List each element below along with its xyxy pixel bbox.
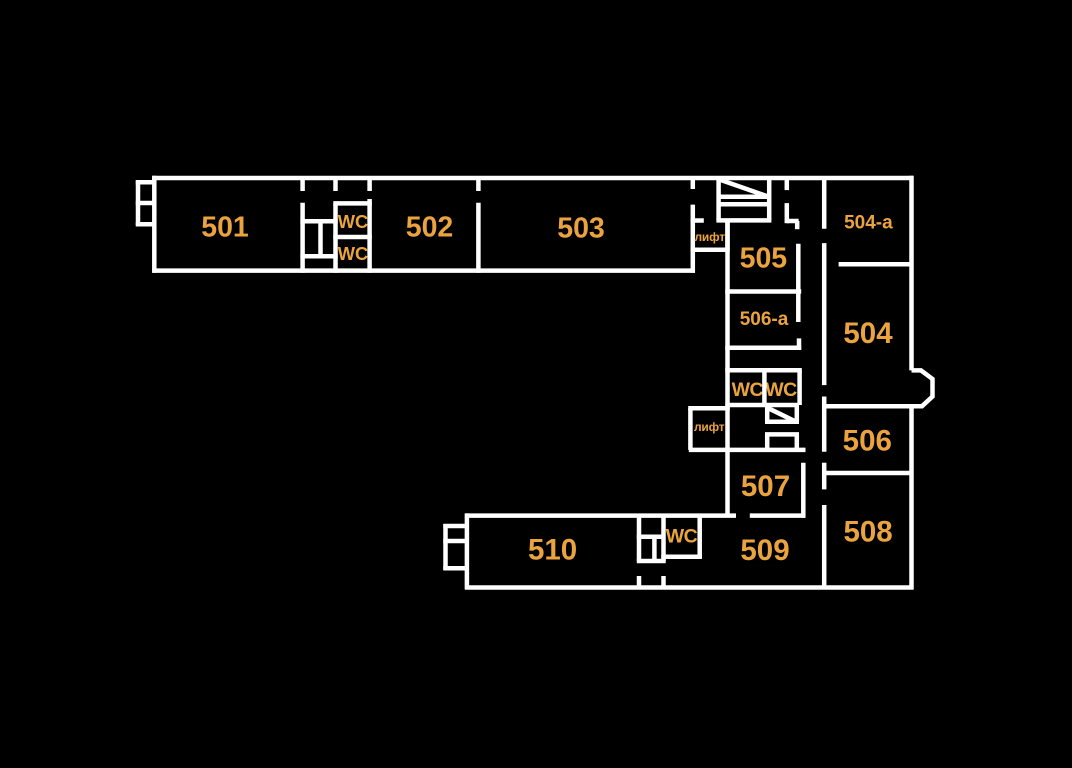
svg-text:504: 504 [843, 317, 893, 350]
svg-text:507: 507 [741, 470, 790, 503]
svg-text:506-a: 506-a [740, 309, 789, 330]
svg-text:503: 503 [557, 212, 605, 244]
svg-text:506: 506 [843, 425, 892, 458]
svg-text:509: 509 [740, 534, 789, 567]
svg-text:лифт: лифт [694, 230, 725, 244]
svg-text:WC: WC [338, 211, 368, 232]
svg-text:WC: WC [732, 379, 764, 401]
svg-text:501: 501 [201, 211, 249, 243]
svg-text:504-a: 504-a [844, 213, 893, 234]
svg-text:510: 510 [528, 534, 577, 567]
svg-text:502: 502 [406, 211, 454, 243]
svg-text:лифт: лифт [694, 420, 725, 434]
svg-text:WC: WC [338, 243, 368, 264]
svg-text:505: 505 [740, 242, 788, 274]
svg-text:WC: WC [765, 379, 797, 401]
svg-text:WC: WC [666, 526, 698, 548]
svg-text:508: 508 [843, 516, 892, 549]
